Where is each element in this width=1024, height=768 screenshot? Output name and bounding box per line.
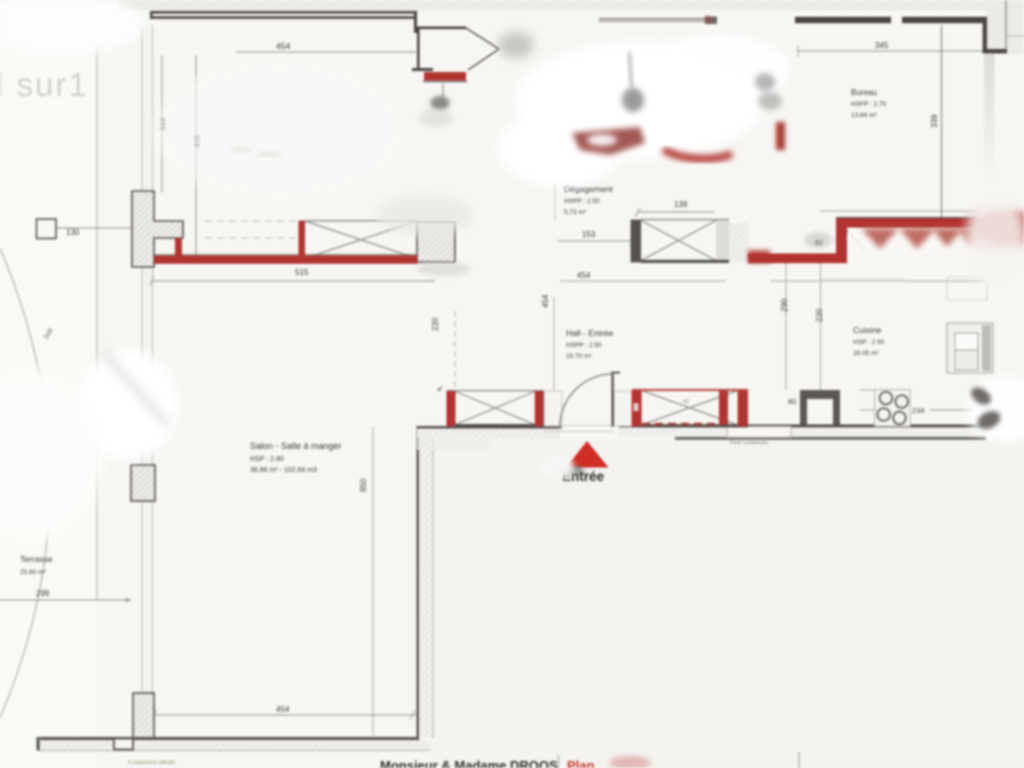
- svg-text:Bureau: Bureau: [851, 88, 877, 97]
- svg-text:15.70 m²: 15.70 m²: [566, 353, 592, 360]
- svg-text:© expression attitude: © expression attitude: [128, 759, 175, 766]
- svg-text:130: 130: [66, 228, 80, 237]
- svg-text:Salon - Salle à manger: Salon - Salle à manger: [250, 441, 342, 451]
- svg-text:454: 454: [541, 294, 550, 308]
- svg-text:454: 454: [577, 271, 591, 280]
- svg-text:345: 345: [875, 41, 889, 50]
- svg-text:13.84 m²: 13.84 m²: [851, 112, 877, 119]
- svg-text:290: 290: [780, 298, 789, 312]
- svg-text:234: 234: [912, 406, 925, 415]
- svg-text:80: 80: [788, 397, 796, 406]
- svg-text:850: 850: [359, 478, 368, 492]
- svg-text:HSPP : 2.50: HSPP : 2.50: [564, 198, 600, 205]
- svg-text:Terrasse: Terrasse: [20, 554, 53, 564]
- svg-text:153: 153: [582, 230, 596, 239]
- svg-text:HSP : 2.50: HSP : 2.50: [853, 339, 885, 346]
- svg-text:Dégagement: Dégagement: [564, 184, 613, 194]
- svg-text:HSP : 2.80: HSP : 2.80: [250, 456, 284, 463]
- svg-text:339: 339: [930, 114, 939, 128]
- svg-text:454: 454: [276, 41, 290, 51]
- svg-text:Cuisine: Cuisine: [853, 325, 882, 335]
- svg-text:454: 454: [276, 705, 290, 714]
- svg-text:515: 515: [295, 268, 309, 277]
- svg-text:25.80 m²: 25.80 m²: [20, 569, 46, 576]
- svg-text:139: 139: [674, 200, 688, 209]
- svg-text:42: 42: [683, 399, 689, 405]
- svg-text:5.73 m²: 5.73 m²: [564, 209, 587, 216]
- svg-text:220: 220: [815, 308, 824, 322]
- svg-text:Monsieur & Madame DROOS: Monsieur & Madame DROOS: [380, 758, 558, 768]
- svg-text:Plan: Plan: [567, 758, 595, 768]
- svg-text:l sur1: l sur1: [0, 66, 89, 103]
- svg-text:HSPP : 2.50: HSPP : 2.50: [566, 342, 602, 349]
- svg-text:Porte condamnée: Porte condamnée: [730, 440, 768, 446]
- svg-text:Hall - Entrée: Hall - Entrée: [566, 328, 614, 338]
- svg-text:16.05 m²: 16.05 m²: [853, 350, 879, 357]
- svg-text:36.86 m² - 102.64 m3: 36.86 m² - 102.64 m3: [250, 467, 317, 474]
- svg-text:220: 220: [431, 317, 440, 331]
- svg-text:299: 299: [36, 589, 50, 598]
- svg-text:HSFP : 2.75: HSFP : 2.75: [851, 101, 887, 108]
